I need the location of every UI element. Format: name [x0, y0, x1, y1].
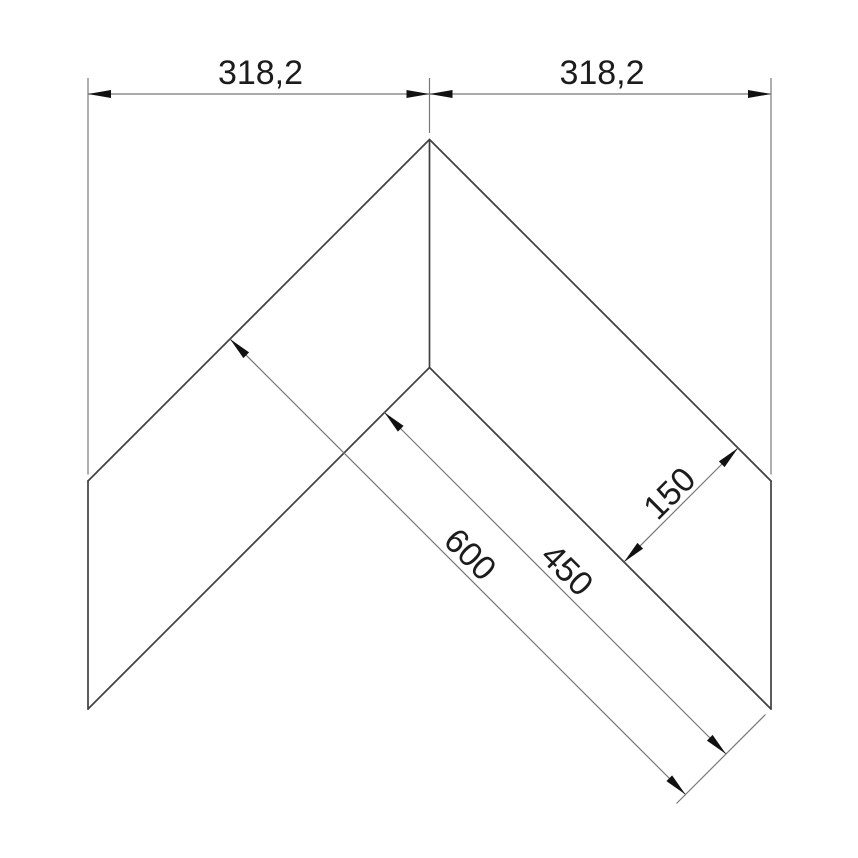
svg-text:318,2: 318,2 [559, 54, 644, 92]
svg-text:318,2: 318,2 [218, 54, 303, 92]
